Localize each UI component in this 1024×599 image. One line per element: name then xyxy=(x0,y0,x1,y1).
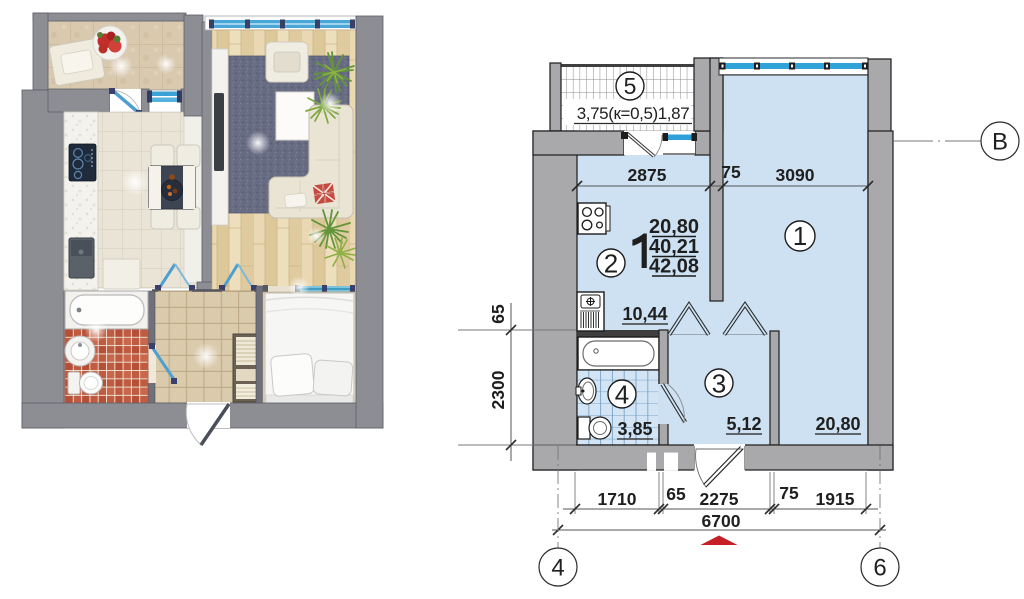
svg-text:1: 1 xyxy=(793,221,807,251)
svg-text:65: 65 xyxy=(666,484,686,504)
svg-text:2300: 2300 xyxy=(488,370,508,409)
svg-text:75: 75 xyxy=(779,483,799,503)
svg-text:5: 5 xyxy=(624,73,637,99)
svg-text:6700: 6700 xyxy=(702,511,741,531)
svg-text:3: 3 xyxy=(712,369,726,399)
svg-text:20,80: 20,80 xyxy=(649,216,699,238)
svg-text:4: 4 xyxy=(615,380,629,410)
svg-text:В: В xyxy=(992,129,1008,156)
svg-text:2875: 2875 xyxy=(628,165,667,185)
svg-text:1710: 1710 xyxy=(598,489,637,509)
svg-text:20,80: 20,80 xyxy=(815,414,860,434)
svg-text:3,75(к=0,5)1,87: 3,75(к=0,5)1,87 xyxy=(577,104,690,123)
svg-text:75: 75 xyxy=(721,162,741,182)
svg-text:5,12: 5,12 xyxy=(726,414,761,434)
svg-text:65: 65 xyxy=(488,304,508,324)
svg-text:2275: 2275 xyxy=(700,489,739,509)
svg-text:2: 2 xyxy=(604,249,618,279)
svg-text:6: 6 xyxy=(873,555,886,582)
svg-text:3090: 3090 xyxy=(776,165,815,185)
svg-text:42,08: 42,08 xyxy=(649,256,699,278)
svg-text:3,85: 3,85 xyxy=(617,419,652,439)
svg-text:10,44: 10,44 xyxy=(622,304,667,324)
svg-text:1915: 1915 xyxy=(816,489,855,509)
svg-text:4: 4 xyxy=(551,555,564,582)
